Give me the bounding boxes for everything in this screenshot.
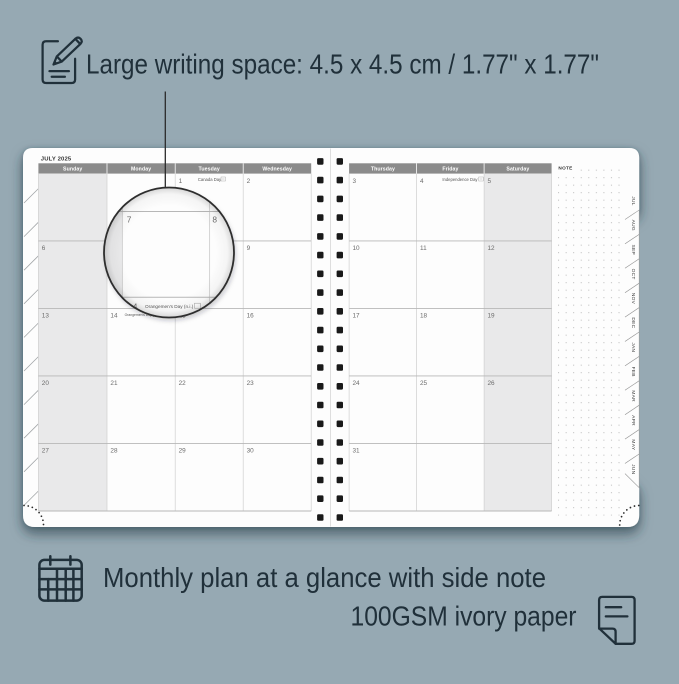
svg-text:28: 28 <box>110 448 118 455</box>
svg-text:29: 29 <box>179 448 187 455</box>
svg-text:JAN: JAN <box>630 342 636 352</box>
svg-text:NOV: NOV <box>630 293 636 305</box>
svg-text:18: 18 <box>420 313 428 320</box>
svg-text:24: 24 <box>353 380 361 387</box>
svg-text:JULY 2025: JULY 2025 <box>41 156 72 162</box>
svg-text:DEC: DEC <box>630 317 636 328</box>
svg-text:6: 6 <box>42 245 46 252</box>
svg-text:2: 2 <box>247 178 251 185</box>
svg-text:Friday: Friday <box>442 167 458 173</box>
svg-text:Monday: Monday <box>131 167 151 173</box>
svg-text:Large writing space: 4.5 x 4.5: Large writing space: 4.5 x 4.5 cm / 1.77… <box>86 49 599 80</box>
svg-text:MAY: MAY <box>630 439 636 450</box>
svg-text:22: 22 <box>179 380 187 387</box>
svg-text:Saturday: Saturday <box>506 167 529 173</box>
svg-text:JUL: JUL <box>630 196 636 205</box>
svg-text:27: 27 <box>42 448 50 455</box>
svg-text:9: 9 <box>247 245 251 252</box>
svg-text:OCT: OCT <box>630 269 636 280</box>
svg-text:25: 25 <box>420 380 428 387</box>
svg-text:20: 20 <box>42 380 50 387</box>
svg-text:11: 11 <box>420 245 427 252</box>
svg-text:4: 4 <box>420 178 424 185</box>
svg-text:13: 13 <box>42 313 50 320</box>
svg-text:16: 16 <box>247 313 255 320</box>
svg-text:APR: APR <box>630 415 636 426</box>
svg-text:17: 17 <box>353 313 361 320</box>
svg-text:SEP: SEP <box>630 244 636 255</box>
svg-text:Thursday: Thursday <box>371 167 395 173</box>
svg-text:100GSM ivory paper: 100GSM ivory paper <box>351 600 577 631</box>
svg-text:FEB: FEB <box>630 367 636 377</box>
svg-text:12: 12 <box>488 245 496 252</box>
svg-text:14: 14 <box>110 313 118 320</box>
svg-text:5: 5 <box>488 178 492 185</box>
svg-text:Tuesday: Tuesday <box>199 167 220 173</box>
svg-text:30: 30 <box>247 448 255 455</box>
svg-text:NOTE: NOTE <box>558 165 572 170</box>
svg-text:1: 1 <box>179 178 183 185</box>
svg-text:MAR: MAR <box>630 390 636 402</box>
svg-text:23: 23 <box>247 380 255 387</box>
svg-text:10: 10 <box>353 245 361 252</box>
svg-text:Monthly plan at a glance with: Monthly plan at a glance with side note <box>103 562 546 593</box>
svg-text:Sunday: Sunday <box>63 167 82 173</box>
svg-text:21: 21 <box>110 380 118 387</box>
svg-text:Canada Day: Canada Day <box>198 177 222 182</box>
svg-text:19: 19 <box>488 313 496 320</box>
svg-text:JUN: JUN <box>630 464 636 474</box>
svg-text:26: 26 <box>488 380 496 387</box>
svg-text:AUG: AUG <box>630 220 636 231</box>
svg-text:3: 3 <box>353 178 357 185</box>
svg-text:31: 31 <box>353 448 361 455</box>
svg-text:Wednesday: Wednesday <box>262 167 292 173</box>
svg-text:Independence Day: Independence Day <box>442 177 478 182</box>
